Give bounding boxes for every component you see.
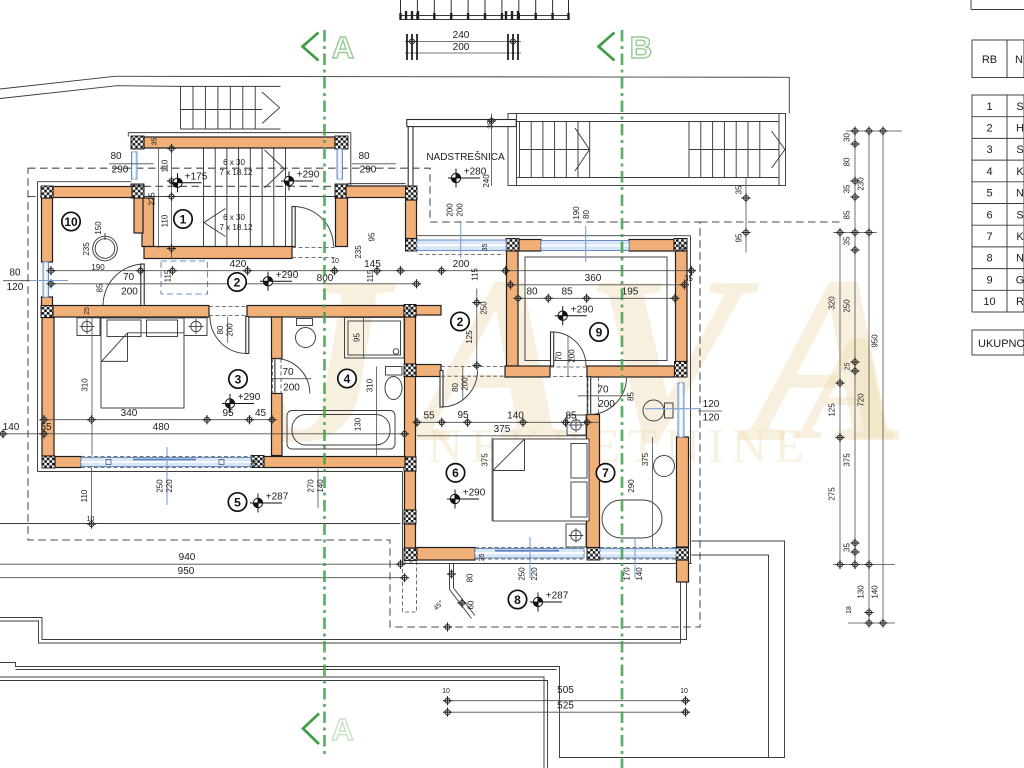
svg-text:7: 7 [986, 231, 992, 243]
svg-text:K: K [1016, 166, 1024, 178]
svg-text:85: 85 [561, 287, 573, 298]
svg-text:35: 35 [684, 274, 693, 283]
svg-text:55: 55 [40, 422, 52, 433]
svg-text:S: S [1016, 209, 1023, 221]
svg-text:115: 115 [164, 269, 173, 282]
svg-text:K: K [1016, 231, 1024, 243]
svg-text:110: 110 [80, 489, 89, 502]
svg-text:200: 200 [453, 42, 470, 53]
svg-text:250: 250 [518, 567, 527, 581]
svg-text:290: 290 [627, 479, 636, 493]
svg-text:+290: +290 [571, 305, 594, 316]
svg-text:95: 95 [735, 233, 744, 242]
svg-text:200: 200 [461, 377, 470, 391]
svg-text:190: 190 [572, 206, 581, 220]
svg-text:A: A [332, 30, 354, 65]
svg-text:85: 85 [565, 411, 577, 422]
svg-text:250: 250 [156, 479, 165, 493]
svg-text:N: N [1016, 188, 1024, 200]
svg-text:130: 130 [857, 585, 866, 599]
svg-text:340: 340 [121, 408, 138, 419]
svg-text:310: 310 [81, 378, 90, 392]
svg-text:S: S [1016, 144, 1023, 156]
svg-text:80: 80 [451, 383, 460, 392]
svg-text:10: 10 [680, 688, 688, 695]
svg-text:R: R [1016, 296, 1024, 308]
svg-text:200: 200 [283, 383, 300, 394]
svg-text:4: 4 [344, 372, 351, 386]
svg-text:225: 225 [148, 192, 157, 206]
svg-text:140: 140 [635, 567, 644, 581]
svg-text:70: 70 [282, 367, 294, 378]
svg-text:95: 95 [368, 232, 377, 241]
svg-text:140: 140 [3, 422, 20, 433]
svg-text:70: 70 [597, 385, 609, 396]
svg-text:220: 220 [165, 479, 174, 493]
svg-text:320: 320 [828, 296, 837, 310]
svg-text:140: 140 [507, 411, 524, 422]
svg-text:RB: RB [982, 54, 997, 66]
svg-text:190: 190 [91, 263, 105, 272]
svg-text:10: 10 [983, 296, 995, 308]
svg-text:80: 80 [526, 287, 538, 298]
svg-text:85: 85 [627, 392, 636, 401]
svg-text:120: 120 [703, 413, 720, 424]
svg-text:200: 200 [568, 349, 577, 363]
svg-text:25: 25 [845, 363, 852, 371]
svg-text:235: 235 [354, 245, 363, 259]
svg-text:7: 7 [602, 466, 609, 480]
svg-text:35: 35 [843, 236, 852, 245]
svg-text:S: S [1016, 101, 1023, 113]
svg-text:35: 35 [482, 244, 489, 252]
svg-text:5: 5 [234, 495, 241, 509]
svg-text:505: 505 [557, 685, 574, 696]
svg-text:N: N [1016, 253, 1024, 265]
svg-text:UKUPNO: UKUPNO [978, 338, 1024, 350]
svg-text:45: 45 [255, 408, 267, 419]
svg-text:+290: +290 [276, 270, 299, 281]
svg-text:80: 80 [466, 573, 475, 582]
svg-text:230: 230 [857, 177, 866, 191]
svg-text:N: N [1015, 54, 1023, 66]
svg-text:7 x 18.12: 7 x 18.12 [220, 223, 253, 232]
svg-text:2: 2 [457, 315, 464, 329]
svg-text:25: 25 [84, 307, 91, 315]
svg-text:9: 9 [596, 325, 603, 339]
svg-text:2: 2 [234, 275, 241, 289]
svg-text:125: 125 [465, 330, 474, 344]
svg-text:200: 200 [446, 203, 455, 217]
svg-text:55: 55 [423, 411, 435, 422]
svg-text:80: 80 [582, 210, 591, 219]
svg-text:4: 4 [986, 166, 992, 178]
svg-text:5: 5 [986, 188, 992, 200]
svg-text:3: 3 [986, 144, 992, 156]
svg-text:115: 115 [471, 268, 480, 281]
svg-text:1: 1 [986, 101, 992, 113]
svg-text:7 x 18.12: 7 x 18.12 [220, 168, 253, 177]
svg-text:35: 35 [488, 121, 495, 129]
svg-text:200: 200 [226, 323, 235, 337]
svg-text:290: 290 [112, 165, 129, 176]
svg-text:250: 250 [480, 301, 489, 315]
svg-text:375: 375 [494, 424, 511, 435]
svg-text:35: 35 [152, 138, 159, 146]
svg-text:10: 10 [442, 688, 450, 695]
svg-text:95: 95 [457, 410, 469, 421]
svg-text:110: 110 [161, 214, 170, 227]
svg-text:35: 35 [479, 554, 486, 562]
svg-text:35: 35 [843, 184, 852, 193]
svg-text:10: 10 [331, 258, 339, 265]
svg-text:150: 150 [94, 221, 103, 235]
svg-text:8: 8 [986, 253, 992, 265]
svg-text:940: 940 [179, 552, 196, 563]
svg-text:A: A [331, 712, 353, 747]
svg-text:85: 85 [96, 283, 105, 292]
svg-text:120: 120 [703, 399, 720, 410]
svg-text:310: 310 [366, 378, 375, 392]
svg-text:70: 70 [555, 351, 564, 360]
svg-text:125: 125 [828, 403, 837, 417]
svg-text:110: 110 [161, 159, 170, 172]
svg-text:+290: +290 [297, 170, 320, 181]
svg-text:950: 950 [178, 566, 195, 577]
svg-text:+175: +175 [185, 172, 208, 183]
svg-text:85: 85 [843, 210, 852, 219]
svg-text:3: 3 [235, 372, 242, 386]
svg-text:120: 120 [7, 282, 24, 293]
svg-text:80: 80 [110, 151, 122, 162]
svg-text:+287: +287 [266, 492, 289, 503]
svg-text:H: H [1016, 123, 1024, 135]
svg-text:+280: +280 [464, 167, 487, 178]
svg-text:140: 140 [871, 585, 880, 599]
svg-text:6 x 30: 6 x 30 [223, 158, 245, 167]
svg-text:35: 35 [252, 459, 259, 467]
svg-text:G: G [1016, 274, 1024, 286]
svg-text:70: 70 [123, 272, 135, 283]
svg-text:95: 95 [353, 333, 362, 342]
svg-text:80: 80 [843, 157, 852, 166]
svg-text:8: 8 [514, 593, 521, 607]
svg-text:+287: +287 [546, 591, 569, 602]
svg-text:35: 35 [680, 244, 687, 252]
svg-text:235: 235 [82, 242, 91, 256]
svg-text:25: 25 [408, 307, 415, 315]
svg-text:720: 720 [857, 393, 866, 407]
svg-text:525: 525 [557, 701, 574, 712]
svg-text:950: 950 [871, 334, 880, 348]
svg-text:6: 6 [986, 209, 992, 221]
svg-text:80: 80 [9, 268, 21, 279]
svg-text:200: 200 [453, 259, 470, 270]
svg-text:130: 130 [354, 417, 363, 431]
svg-text:80: 80 [216, 325, 225, 334]
svg-text:30: 30 [843, 133, 852, 142]
svg-text:6 x 30: 6 x 30 [223, 213, 245, 222]
svg-text:9: 9 [986, 274, 992, 286]
svg-text:35: 35 [735, 185, 744, 194]
svg-text:250: 250 [843, 299, 852, 313]
svg-text:B: B [630, 30, 652, 65]
svg-text:240: 240 [453, 30, 470, 41]
svg-text:145: 145 [364, 259, 381, 270]
svg-text:200: 200 [598, 399, 615, 410]
svg-text:420: 420 [230, 259, 247, 270]
svg-text:220: 220 [530, 567, 539, 581]
svg-text:NADSTREŠNICA: NADSTREŠNICA [426, 150, 505, 163]
svg-text:80: 80 [358, 151, 370, 162]
svg-text:+290: +290 [463, 488, 486, 499]
svg-text:170: 170 [623, 567, 632, 581]
svg-text:200: 200 [456, 203, 465, 217]
svg-text:200: 200 [121, 287, 138, 298]
svg-text:10: 10 [64, 215, 78, 229]
svg-text:18: 18 [846, 606, 853, 614]
svg-text:6: 6 [452, 466, 459, 480]
svg-text:290: 290 [360, 165, 377, 176]
svg-text:1: 1 [180, 212, 187, 226]
svg-text:270: 270 [307, 479, 316, 493]
svg-text:10: 10 [87, 516, 95, 523]
svg-text:+290: +290 [238, 392, 261, 403]
svg-text:480: 480 [153, 422, 170, 433]
svg-text:95: 95 [222, 408, 234, 419]
svg-text:115: 115 [366, 269, 375, 282]
svg-text:375: 375 [843, 453, 852, 467]
svg-text:35: 35 [843, 543, 852, 552]
svg-text:375: 375 [641, 452, 650, 466]
svg-text:275: 275 [828, 487, 837, 501]
svg-text:375: 375 [481, 453, 490, 467]
svg-text:60: 60 [467, 600, 476, 609]
svg-text:2: 2 [986, 123, 992, 135]
svg-text:360: 360 [585, 273, 602, 284]
svg-text:195: 195 [622, 287, 639, 298]
